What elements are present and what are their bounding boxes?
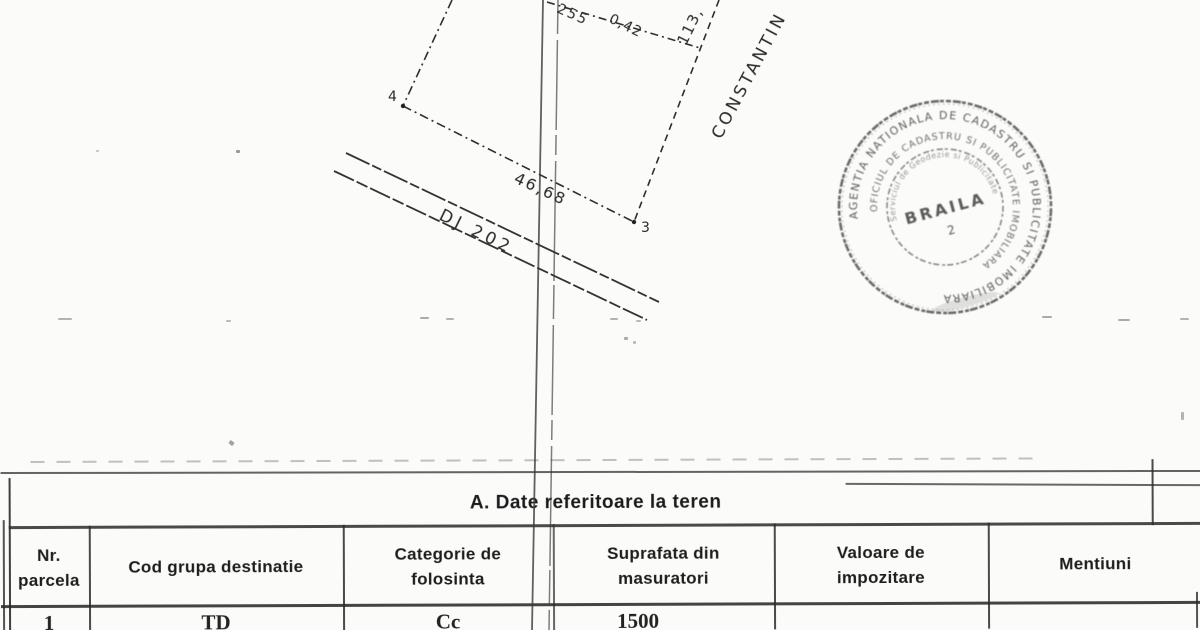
- row-cell-valoare: [776, 608, 986, 609]
- col-separator-4: [774, 523, 776, 629]
- header-suprafata-masuratori: Suprafata din masuratori: [555, 527, 772, 604]
- col-separator-5: [988, 523, 990, 629]
- row-cell-nr: 1: [11, 611, 87, 630]
- row-cell-cod: TD: [91, 610, 341, 630]
- header-line: Categorie de: [394, 541, 501, 567]
- header-valoare-impozitare: Valoare de impozitare: [776, 527, 986, 604]
- table-outer-top-border: [1, 470, 1200, 474]
- table-top-border-fragment: [846, 483, 1200, 486]
- header-categorie-folosinta: Categorie de folosinta: [345, 528, 551, 605]
- header-cod-grupa-destinatie: Cod grupa destinatie: [91, 529, 341, 606]
- header-line: parcela: [18, 568, 80, 594]
- title-row-right-border: [1152, 459, 1154, 525]
- header-line: impozitare: [837, 565, 925, 591]
- header-nr-parcela: Nr. parcela: [11, 530, 87, 606]
- header-line: folosinta: [411, 566, 485, 592]
- row-cell-categorie: Cc: [345, 609, 551, 630]
- scanned-cadastral-document: A. Date referitoare la teren Nr. parcela…: [0, 0, 1200, 630]
- table-right-border-fragment: [1196, 592, 1198, 628]
- table-top-smudge-line: [31, 457, 1041, 463]
- land-data-table: A. Date referitoare la teren Nr. parcela…: [0, 0, 1200, 630]
- header-line: Cod grupa destinatie: [128, 554, 303, 580]
- table-section-title: A. Date referitoare la teren: [431, 491, 761, 514]
- header-line: Valoare de: [837, 539, 925, 565]
- table-left-outer-border: [3, 520, 5, 630]
- header-line: Mentiuni: [1059, 551, 1131, 577]
- header-line: masuratori: [618, 566, 709, 592]
- row-cell-mentiuni: [990, 607, 1200, 608]
- header-line: Suprafata din: [607, 540, 720, 566]
- header-mentiuni: Mentiuni: [990, 526, 1200, 603]
- header-line: Nr.: [37, 542, 61, 568]
- row-cell-suprafata: 1500: [553, 609, 723, 630]
